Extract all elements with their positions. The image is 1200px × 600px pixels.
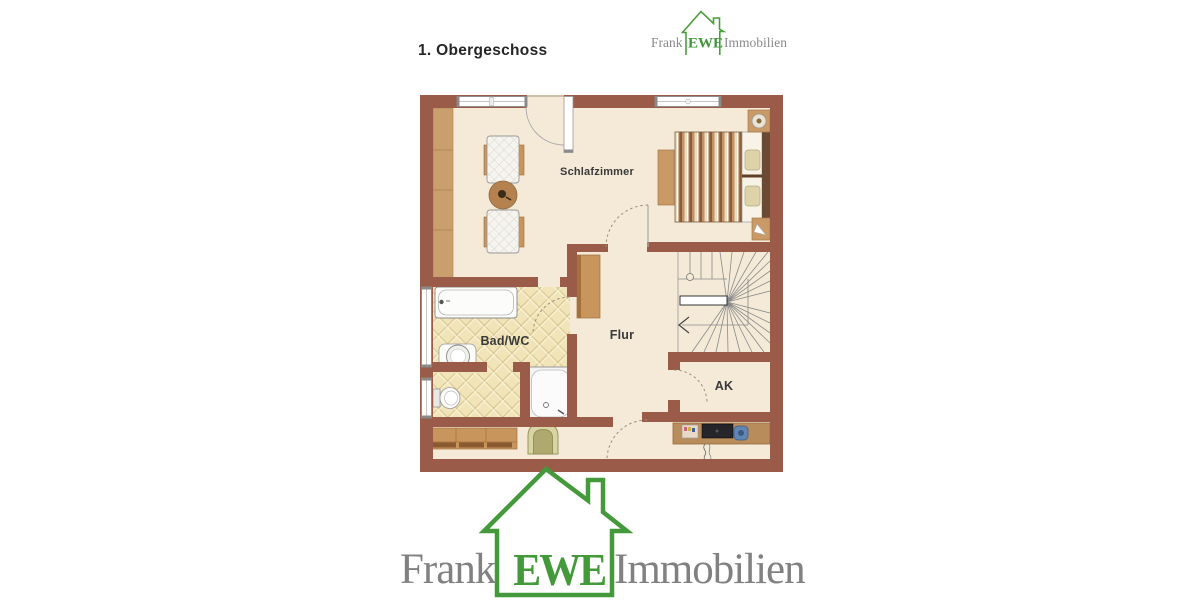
label-bath: Bad/WC: [480, 334, 529, 348]
stair-cut-line: [680, 296, 727, 305]
brand-logo-small: Frank EWE Immobilien: [640, 4, 795, 60]
brand-word-middle-large: EWE: [513, 548, 599, 593]
wall-shelf-item: [752, 218, 770, 240]
brand-word-first: Frank: [651, 35, 683, 50]
wall-ak-west-top: [668, 352, 680, 370]
wardrobe: [577, 255, 600, 318]
label-bedroom: Schlafzimmer: [560, 166, 634, 178]
wall-shower-side: [520, 362, 530, 417]
label-hall: Flur: [610, 328, 634, 342]
wall-bath-mid: [433, 362, 487, 372]
floor-title: 1. Obergeschoss: [418, 42, 547, 60]
double-bed: [658, 132, 770, 222]
wall-bath-north: [433, 277, 538, 287]
window-top-left: [457, 97, 527, 107]
brand-word-last-large: Immobilien: [614, 548, 805, 591]
page: 1. Obergeschoss Frank EWE Immobilien: [0, 0, 1200, 600]
floor-plan-svg: Schlafzimmer Bad/WC Flur AK: [420, 95, 783, 472]
wall-bath-north-corner: [560, 277, 577, 287]
brand-logo-small-svg: Frank EWE Immobilien: [640, 4, 795, 60]
wall-bath-south: [420, 417, 613, 427]
round-table: [489, 181, 517, 209]
toilet: [433, 388, 460, 409]
brand-logo-large: Frank EWE Immobilien: [400, 462, 800, 600]
wall-ak-south: [642, 412, 770, 422]
window-top-right: [655, 97, 721, 107]
sloped-ceiling-strip: [433, 108, 453, 278]
sideboard: [428, 428, 517, 449]
brand-word-middle: EWE: [688, 36, 723, 52]
wall-stairs-south: [668, 352, 770, 362]
sitting-chair-top: [484, 136, 524, 183]
brand-word-first-large: Frank: [400, 548, 495, 591]
bathtub: [435, 287, 517, 318]
wall-bedroom-south: [647, 242, 770, 252]
window-bath-upper: [422, 287, 432, 367]
window-bath-lower: [422, 378, 432, 418]
floor-plan: Schlafzimmer Bad/WC Flur AK: [420, 95, 783, 472]
nightstand-lamp: [748, 110, 770, 132]
wall-ak-west-bottom: [668, 400, 680, 414]
tub-chair: [528, 423, 558, 454]
wall-bath-east-bottom: [567, 334, 577, 427]
sitting-chair-bottom: [484, 210, 524, 253]
wall-bath-east-top: [567, 287, 577, 297]
partition-panel: [564, 97, 573, 153]
wall-exterior-right: [770, 95, 783, 472]
brand-word-last: Immobilien: [724, 35, 787, 50]
label-closet: AK: [715, 379, 733, 393]
shower: [528, 367, 573, 420]
